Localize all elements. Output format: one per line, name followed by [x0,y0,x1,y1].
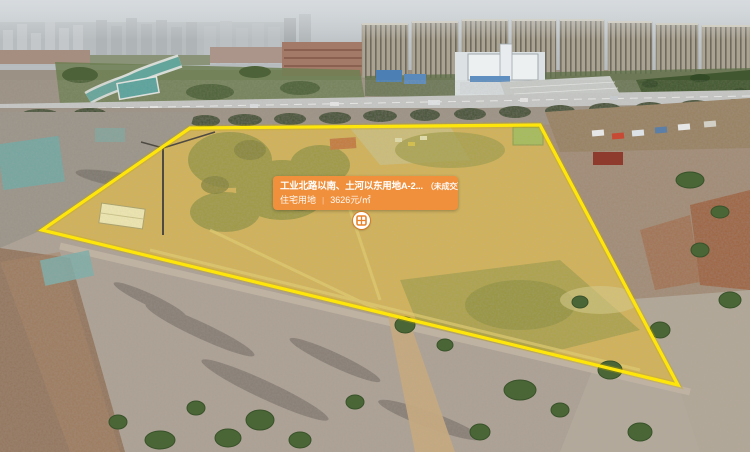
land-map-viewport: 工业北路以南、土河以东用地A-2... （未成交） 住宅用地 | 3626元/㎡ [0,0,750,452]
parcel-title-row: 工业北路以南、土河以东用地A-2... （未成交） [280,180,451,193]
parcel-status-badge: （未成交） [426,180,458,193]
parcel-meta-row: 住宅用地 | 3626元/㎡ [280,194,451,206]
parcel-title: 工业北路以南、土河以东用地A-2... [280,180,423,193]
parcel-map-marker[interactable] [353,212,370,229]
parcel-info-card[interactable]: 工业北路以南、土河以东用地A-2... （未成交） 住宅用地 | 3626元/㎡ [273,176,458,210]
aerial-photo-background [0,0,750,452]
unit-price: 3626元/㎡ [330,194,371,206]
parcel-grid-icon [356,215,367,226]
terrain [0,98,750,452]
separator: | [322,194,324,206]
land-use-label: 住宅用地 [280,194,316,206]
